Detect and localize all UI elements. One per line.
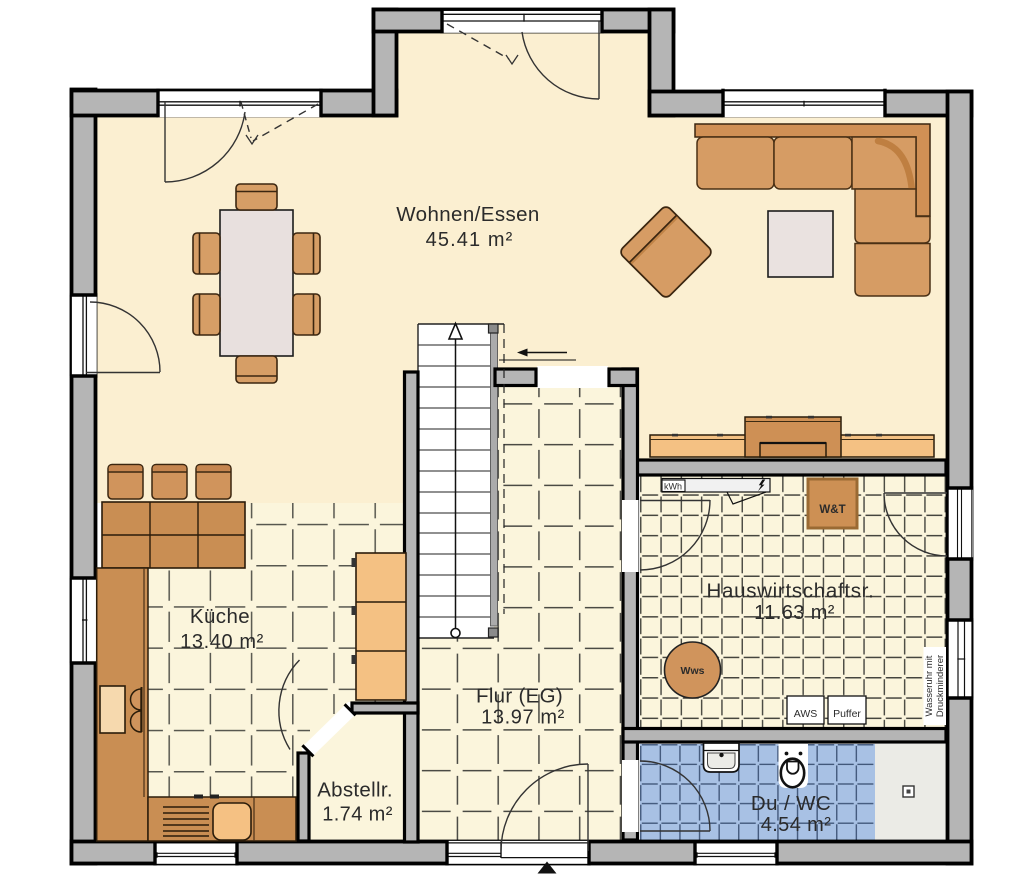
svg-text:Flur (EG): Flur (EG) <box>476 685 563 708</box>
svg-text:13.97 m²: 13.97 m² <box>481 707 565 729</box>
svg-text:1.74 m²: 1.74 m² <box>322 804 393 826</box>
svg-text:Puffer: Puffer <box>833 708 861 720</box>
svg-text:Küche: Küche <box>190 605 250 628</box>
svg-text:Wasseruhr mit: Wasseruhr mit <box>924 655 935 716</box>
svg-text:Du / WC: Du / WC <box>751 792 831 815</box>
svg-text:Wws: Wws <box>681 665 705 677</box>
svg-text:Hauswirtschaftsr.: Hauswirtschaftsr. <box>707 580 875 603</box>
svg-text:W&T: W&T <box>819 504 845 516</box>
svg-text:4.54 m²: 4.54 m² <box>761 814 832 836</box>
svg-text:11.63 m²: 11.63 m² <box>754 602 835 624</box>
svg-text:13.40 m²: 13.40 m² <box>180 631 264 653</box>
svg-text:Wohnen/Essen: Wohnen/Essen <box>396 203 539 226</box>
svg-text:kWh: kWh <box>664 482 682 492</box>
svg-text:45.41 m²: 45.41 m² <box>426 229 514 251</box>
svg-text:AWS: AWS <box>794 708 818 720</box>
svg-text:Abstellr.: Abstellr. <box>317 779 393 802</box>
svg-text:Druckminderer: Druckminderer <box>935 655 946 717</box>
